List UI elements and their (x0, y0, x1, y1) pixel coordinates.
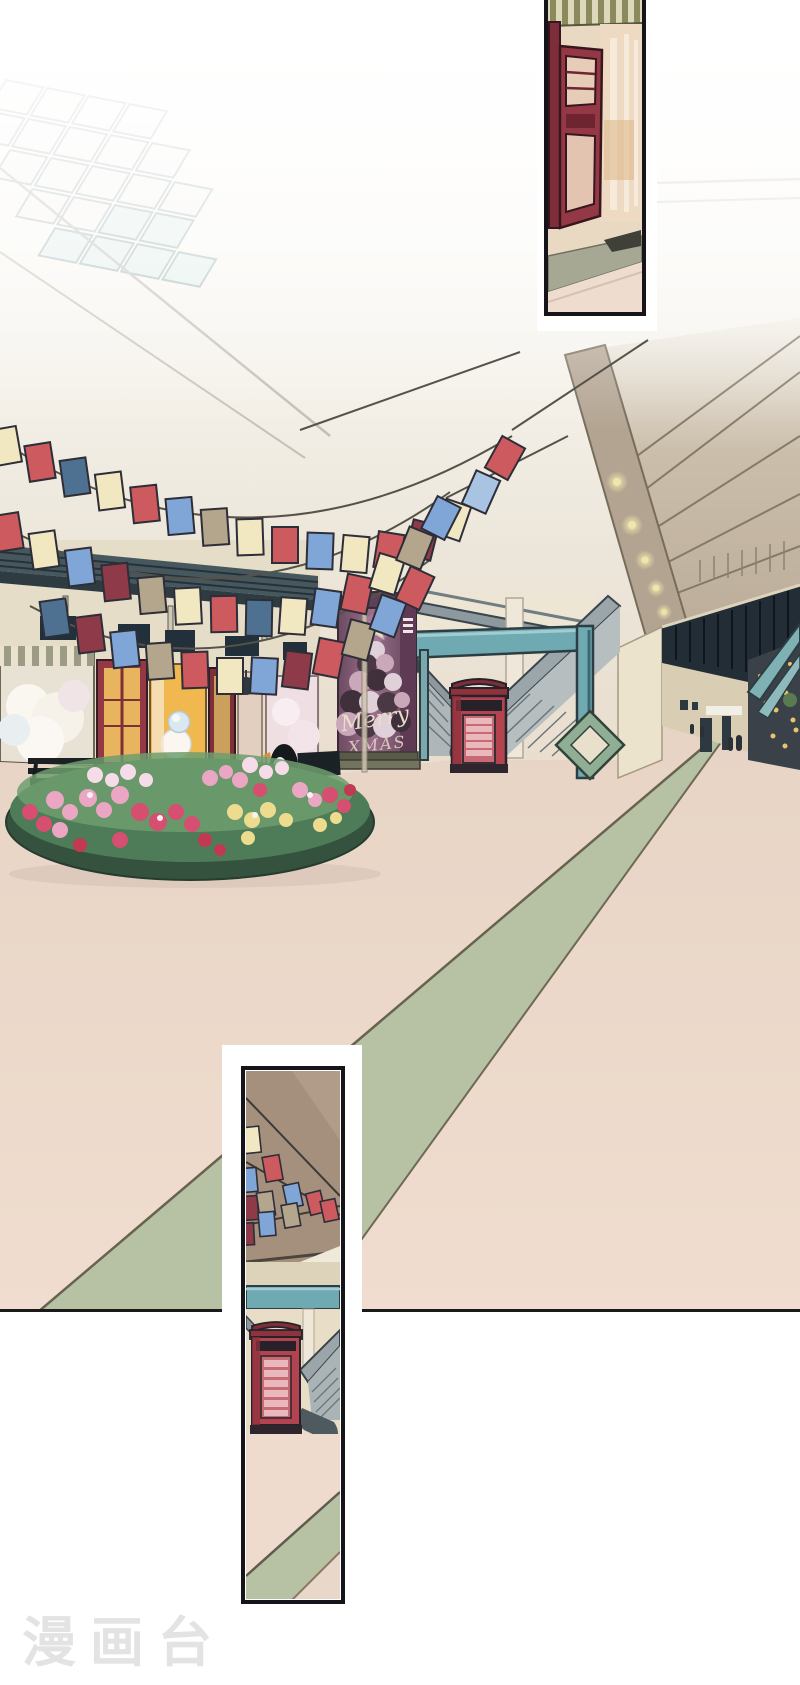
corridor-side-wall (618, 627, 662, 778)
phone-booth (450, 679, 508, 773)
inset-top-content (548, 0, 642, 314)
thin-teal-pole (420, 650, 428, 760)
inset-bottom-content (239, 1071, 340, 1602)
small-plant (783, 693, 797, 707)
display-window-left (0, 646, 94, 770)
site-watermark: 漫画台 (22, 1598, 226, 1677)
banner-tiny-text (403, 618, 413, 633)
light-haze (0, 0, 800, 430)
inset-awning (548, 0, 642, 26)
inset-bottom (222, 1045, 362, 1620)
inset-phone-booth (250, 1322, 302, 1434)
inset-red-door (549, 22, 602, 228)
booth-base (450, 764, 508, 773)
main-panel: Merry XMAS R B (0, 0, 800, 1313)
snowman-head (169, 712, 190, 733)
panel-bottom-border (0, 1309, 800, 1313)
flower-bed (6, 752, 381, 888)
inset-top-right (537, 0, 657, 331)
mall-scene-illustration: Merry XMAS R B (0, 0, 800, 1685)
booth-sign-band (456, 700, 502, 711)
distant-sign-band (706, 706, 742, 715)
comic-page: Merry XMAS R B (0, 0, 800, 1685)
